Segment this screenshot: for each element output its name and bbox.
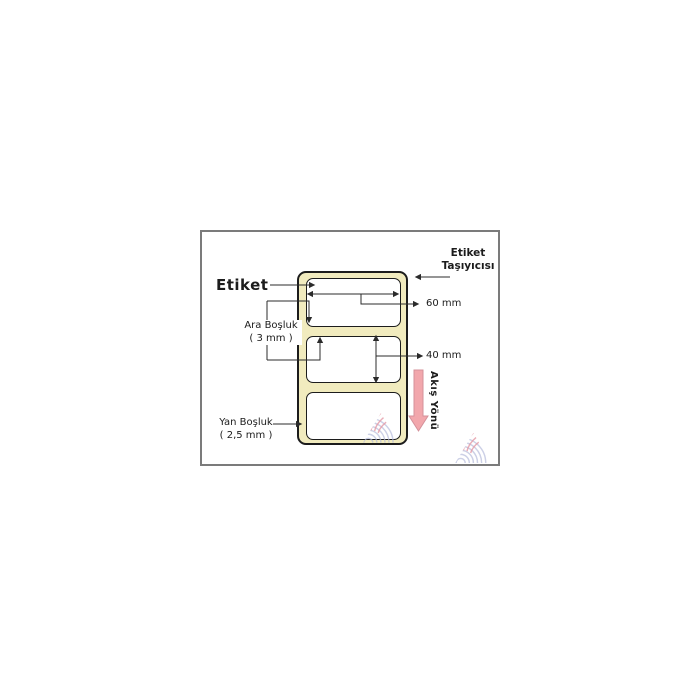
gap-bracket-top [267,301,309,322]
width-dimension-leader [361,294,418,304]
width-dimension-label: 60 mm [426,298,461,310]
side-margin-label-line2: ( 2,5 mm ) [214,429,278,442]
gap-label-line1: Ara Boşluk [240,320,302,333]
height-dimension-label: 40 mm [426,350,461,362]
carrier-label: Etiket Taşıyıcısı [428,247,508,273]
gap-label-line2: ( 3 mm ) [240,333,302,346]
etiket-label: Etiket [216,276,268,294]
carrier-label-line1: Etiket [428,247,508,260]
flow-direction-label: Akış Yönü [428,371,439,423]
side-margin-label: Yan Boşluk ( 2,5 mm ) [214,416,278,442]
side-margin-label-line1: Yan Boşluk [214,416,278,429]
carrier-label-line2: Taşıyıcısı [428,260,508,273]
gap-label: Ara Boşluk ( 3 mm ) [240,320,302,345]
flow-direction-arrow-icon [409,370,428,431]
diagram-frame: Etiket Etiket Taşıyıcısı 60 mm 40 mm Ara… [200,230,500,466]
